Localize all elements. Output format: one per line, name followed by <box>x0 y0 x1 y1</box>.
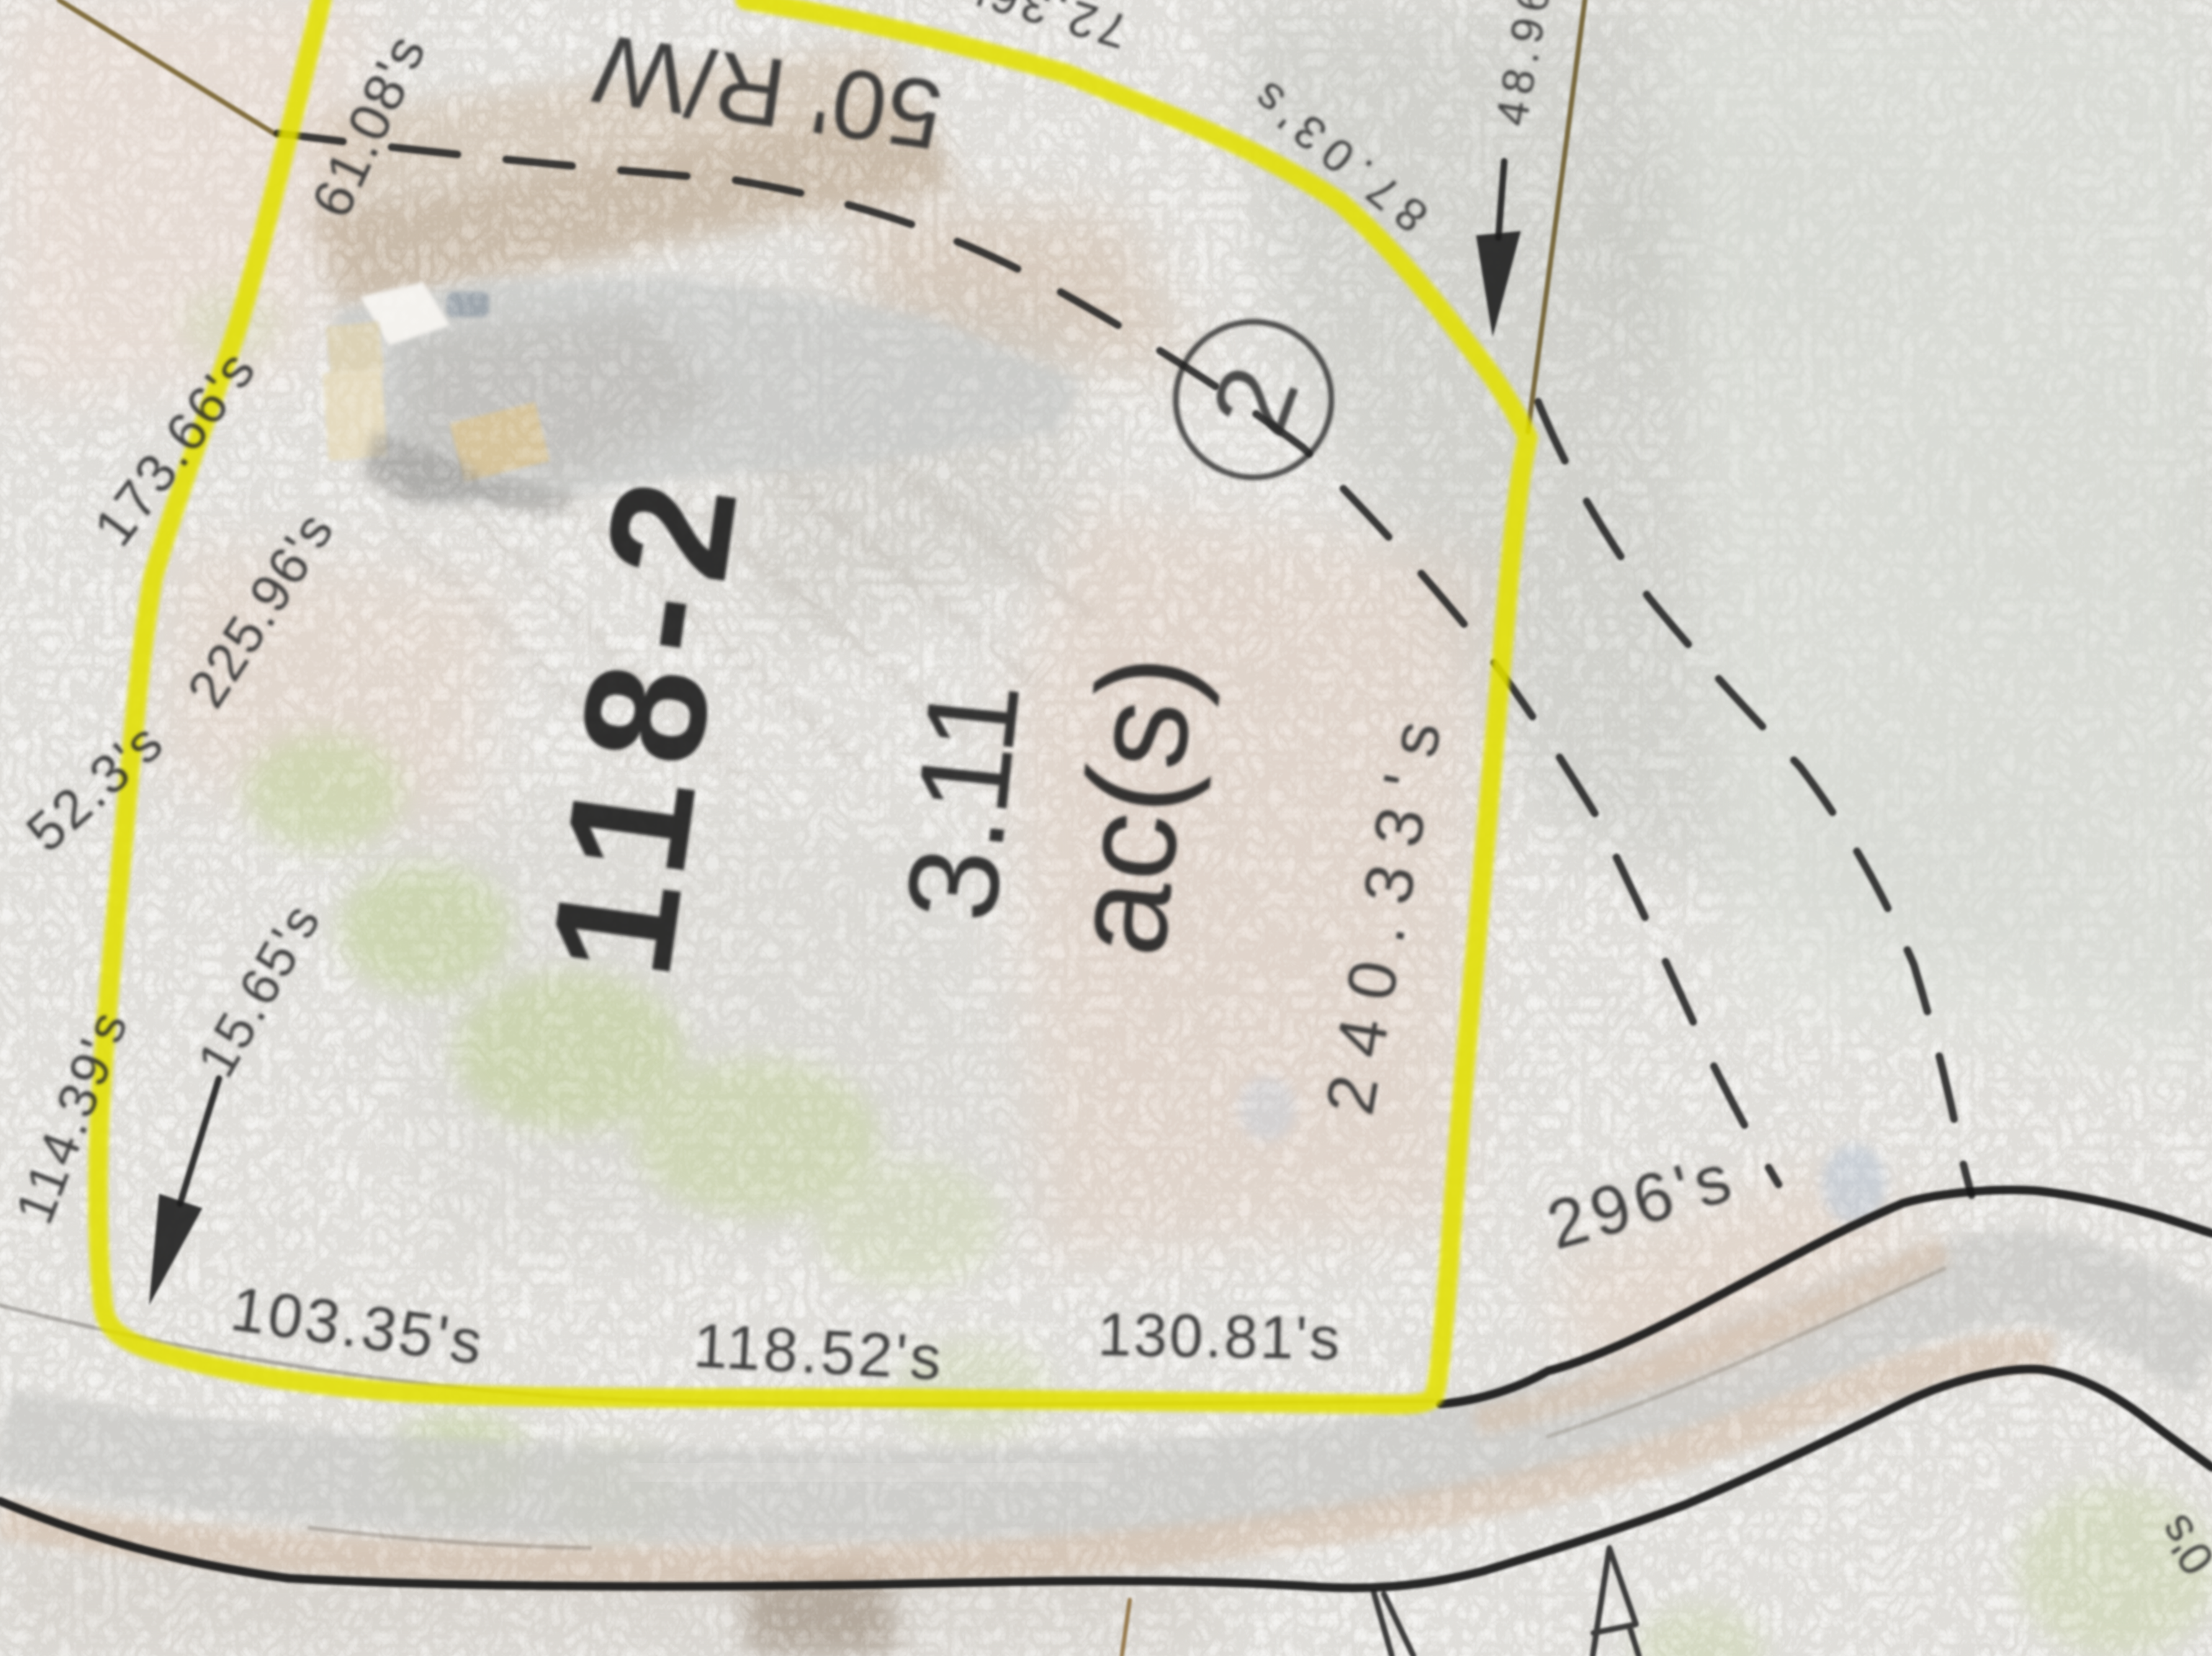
svg-text:ac(s): ac(s) <box>1042 647 1224 962</box>
svg-text:3.11: 3.11 <box>879 674 1047 927</box>
svg-text:130.81's: 130.81's <box>1097 1300 1343 1372</box>
svg-text:118.52's: 118.52's <box>692 1311 946 1393</box>
